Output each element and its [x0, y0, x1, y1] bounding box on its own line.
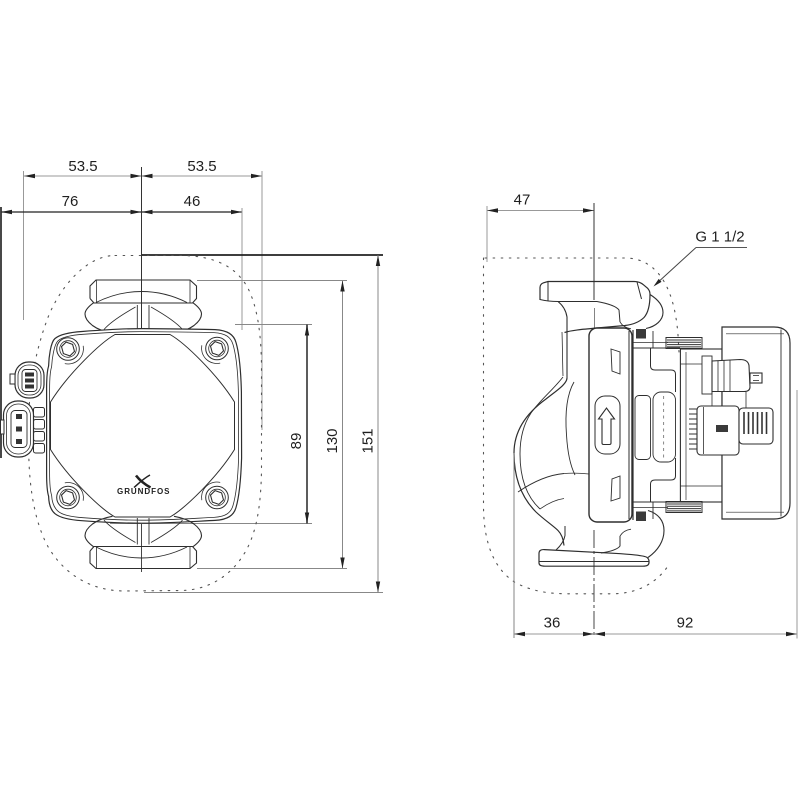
svg-text:46: 46 [184, 193, 201, 210]
svg-text:53.5: 53.5 [68, 158, 97, 175]
svg-text:92: 92 [677, 615, 694, 632]
svg-text:130: 130 [324, 428, 341, 453]
svg-text:53.5: 53.5 [187, 158, 216, 175]
svg-text:151: 151 [360, 428, 377, 453]
svg-text:76: 76 [62, 193, 79, 210]
svg-text:G 1 1/2: G 1 1/2 [695, 229, 744, 246]
svg-text:47: 47 [514, 192, 531, 209]
svg-text:GRUNDFOS: GRUNDFOS [117, 487, 170, 496]
svg-text:36: 36 [544, 615, 561, 632]
svg-text:89: 89 [288, 433, 305, 450]
